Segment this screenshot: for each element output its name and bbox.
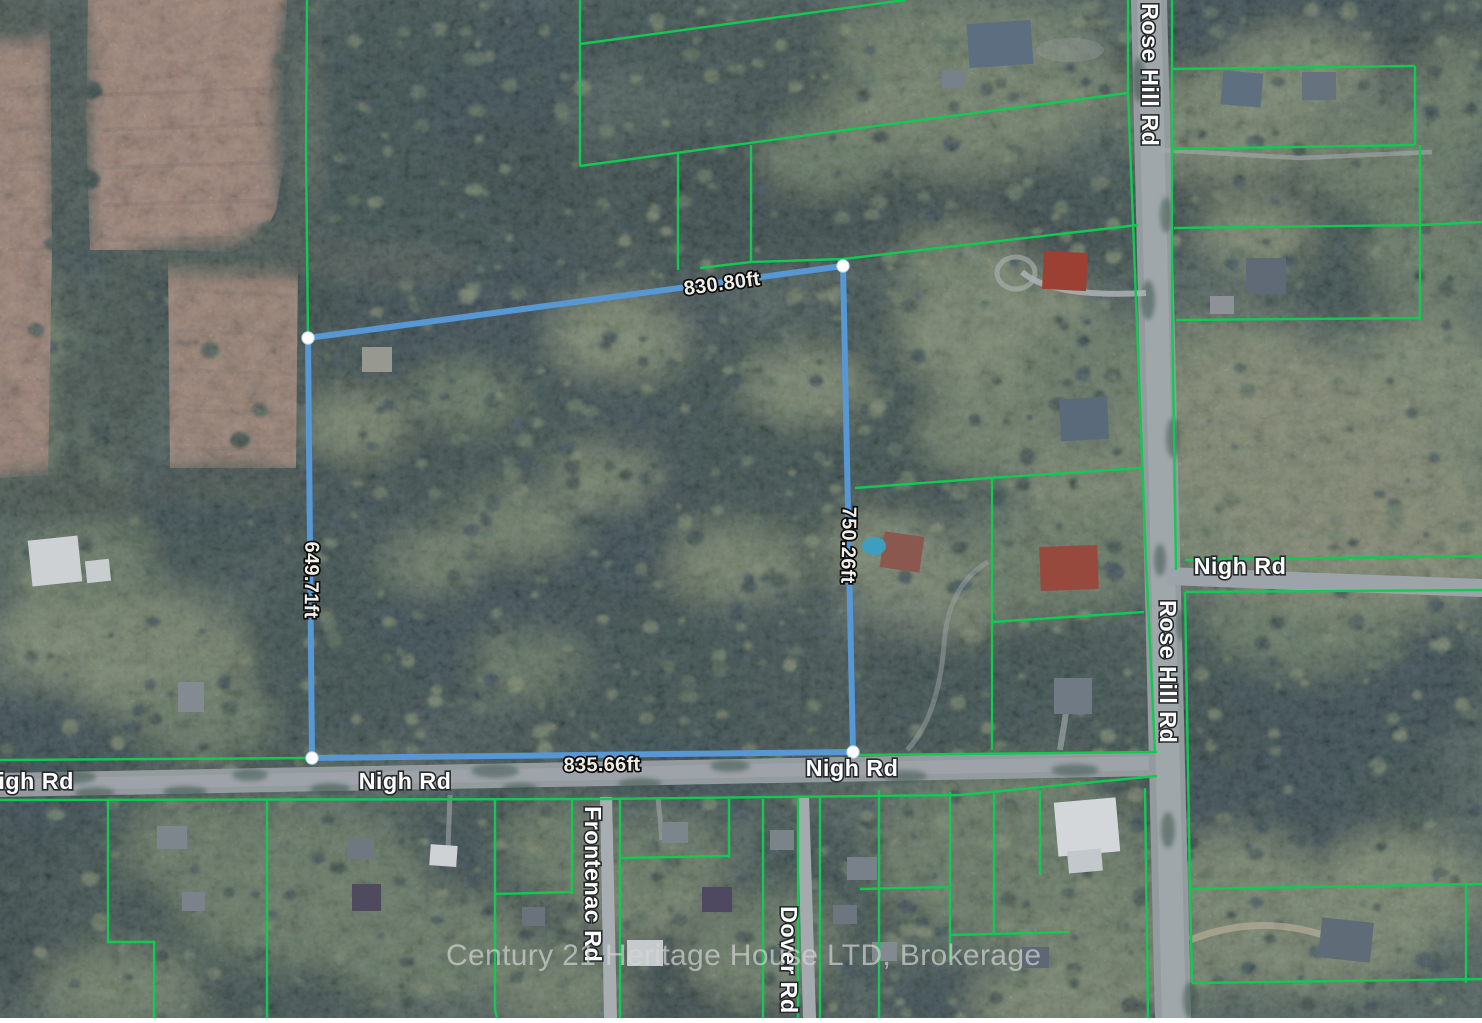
- svg-text:Rose Hill Rd: Rose Hill Rd: [1155, 600, 1181, 743]
- svg-text:Nigh Rd: Nigh Rd: [0, 768, 74, 794]
- svg-text:Nigh Rd: Nigh Rd: [806, 755, 899, 781]
- svg-text:Rose Hill Rd: Rose Hill Rd: [1137, 3, 1163, 146]
- svg-text:649.71ft: 649.71ft: [300, 542, 323, 619]
- svg-text:Nigh Rd: Nigh Rd: [1194, 553, 1287, 579]
- svg-text:750.26ft: 750.26ft: [836, 506, 860, 583]
- svg-text:Century 21 Heritage House LTD,: Century 21 Heritage House LTD, Brokerage: [446, 939, 1041, 972]
- svg-text:835.66ft: 835.66ft: [563, 754, 640, 777]
- svg-text:Nigh Rd: Nigh Rd: [359, 768, 452, 794]
